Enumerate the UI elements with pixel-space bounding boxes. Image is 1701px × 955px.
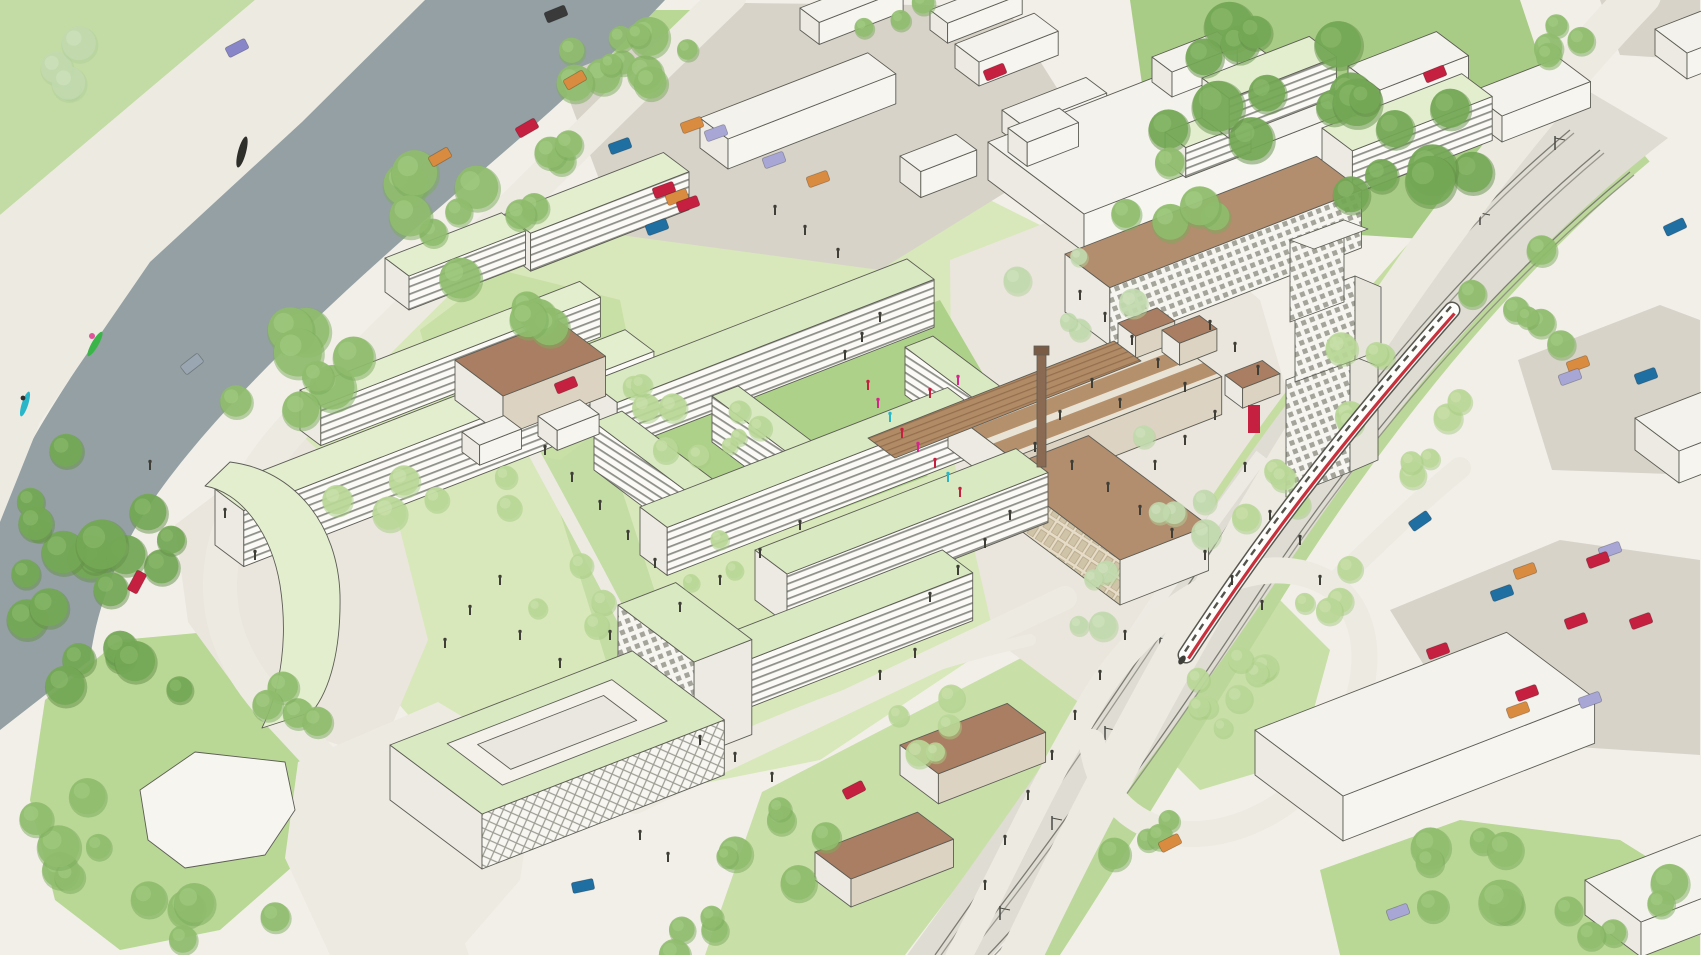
tree-highlight — [1199, 87, 1222, 110]
tree-highlight — [1558, 900, 1570, 912]
person-head — [958, 487, 961, 490]
person-head — [916, 442, 919, 445]
tree-highlight — [751, 419, 761, 429]
tree-highlight — [1236, 507, 1248, 519]
tree-highlight — [1551, 334, 1563, 346]
person-head — [770, 772, 773, 775]
tree-highlight — [149, 554, 164, 569]
red-banner — [1248, 405, 1260, 433]
person-head — [946, 472, 949, 475]
tree-highlight — [306, 365, 320, 379]
tree-highlight — [54, 438, 69, 453]
tree-highlight — [703, 908, 713, 918]
person-head — [1233, 342, 1236, 345]
tree-highlight — [1136, 428, 1146, 438]
person-head — [1138, 505, 1141, 508]
person-head — [1260, 600, 1263, 603]
tree-highlight — [427, 490, 438, 501]
tree-highlight — [98, 577, 113, 592]
tree-highlight — [728, 563, 736, 571]
tree-highlight — [1473, 831, 1485, 843]
tree-highlight — [1520, 309, 1529, 318]
person-head — [1078, 290, 1081, 293]
tree-highlight — [1190, 43, 1207, 60]
tree-highlight — [680, 42, 689, 51]
person-head — [1213, 410, 1216, 413]
tree-highlight — [1150, 827, 1161, 838]
tree-highlight — [393, 469, 407, 483]
person-head — [1123, 630, 1126, 633]
tree-highlight — [498, 468, 508, 478]
tree-highlight — [89, 837, 100, 848]
person-head — [928, 388, 931, 391]
tree-highlight — [638, 70, 653, 85]
tree-highlight — [1435, 94, 1453, 112]
person-head — [798, 520, 801, 523]
tree-highlight — [1274, 468, 1285, 479]
tree-highlight — [1007, 270, 1019, 282]
tree-highlight — [942, 688, 954, 700]
person-head — [1183, 382, 1186, 385]
tree-highlight — [662, 397, 674, 409]
person-head — [860, 332, 863, 335]
person-head — [1070, 460, 1073, 463]
tree-highlight — [120, 646, 138, 664]
person-head — [653, 558, 656, 561]
tree-highlight — [587, 616, 598, 627]
person-head — [638, 830, 641, 833]
tree-highlight — [1492, 836, 1508, 852]
person-head — [878, 670, 881, 673]
tree-highlight — [941, 717, 951, 727]
tree-highlight — [656, 440, 667, 451]
person-head — [758, 548, 761, 551]
tree-highlight — [1340, 559, 1351, 570]
tree-highlight — [1368, 345, 1378, 355]
person-head — [956, 565, 959, 568]
tree-highlight — [857, 20, 866, 29]
tree-highlight — [1530, 239, 1543, 252]
tree-highlight — [12, 604, 30, 622]
tree-highlight — [15, 563, 28, 576]
person-head — [1298, 535, 1301, 538]
person-head — [878, 312, 881, 315]
tree-highlight — [1462, 283, 1474, 295]
tree-highlight — [893, 12, 902, 21]
tree-highlight — [74, 783, 90, 799]
tree-highlight — [24, 806, 39, 821]
tree-highlight — [1196, 493, 1206, 503]
tree-highlight — [1319, 601, 1331, 613]
person-head — [518, 630, 521, 633]
person-head — [1230, 575, 1233, 578]
person-head — [913, 648, 916, 651]
tree-highlight — [1329, 336, 1343, 350]
tree-highlight — [1072, 250, 1080, 258]
person-head — [223, 508, 226, 511]
tree-highlight — [1548, 17, 1558, 27]
tree-highlight — [1190, 671, 1200, 681]
tree-highlight — [909, 743, 921, 755]
tree-highlight — [170, 680, 182, 692]
person-head — [626, 530, 629, 533]
tree-highlight — [34, 593, 51, 610]
tree-highlight — [1421, 894, 1435, 908]
tree-highlight — [1419, 851, 1431, 863]
person-head — [1170, 528, 1173, 531]
person-head — [570, 472, 573, 475]
person-head — [1090, 378, 1093, 381]
person-head — [928, 592, 931, 595]
person-head — [803, 225, 806, 228]
tree-highlight — [928, 745, 937, 754]
person-head — [773, 205, 776, 208]
tree-highlight — [1412, 162, 1434, 184]
tree-highlight — [509, 203, 522, 216]
person-head — [1318, 575, 1321, 578]
person-head — [443, 638, 446, 641]
tree-highlight — [539, 141, 553, 155]
person-head — [543, 445, 546, 448]
person-head — [1243, 462, 1246, 465]
tree-highlight — [256, 694, 269, 707]
tree-highlight — [594, 593, 605, 604]
tree-highlight — [50, 671, 68, 689]
person-head — [1098, 670, 1101, 673]
person-head — [1208, 320, 1211, 323]
person-head — [698, 735, 701, 738]
tree-highlight — [271, 675, 285, 689]
tree-highlight — [630, 26, 640, 36]
tree-highlight — [135, 886, 151, 902]
tree-highlight — [1154, 114, 1172, 132]
tree-highlight — [1457, 157, 1475, 175]
tree-highlight — [724, 440, 731, 447]
person-head — [1203, 550, 1206, 553]
tree-highlight — [733, 431, 740, 438]
person-head — [1003, 835, 1006, 838]
person-head — [1153, 460, 1156, 463]
person-head — [1183, 435, 1186, 438]
tree-highlight — [1656, 869, 1673, 886]
tree-highlight — [67, 647, 81, 661]
person-head — [733, 752, 736, 755]
tree-highlight — [1123, 292, 1135, 304]
tree-highlight — [1243, 20, 1258, 35]
tree-highlight — [1369, 163, 1384, 178]
person-head — [983, 538, 986, 541]
tree-highlight — [1092, 615, 1105, 628]
tree-highlight — [1451, 392, 1462, 403]
person-head — [1106, 482, 1109, 485]
tree-highlight — [1297, 595, 1306, 604]
tree-highlight — [1416, 832, 1433, 849]
person-head — [888, 412, 891, 415]
tree-highlight — [1161, 813, 1170, 822]
tree-highlight — [66, 30, 81, 45]
tree-highlight — [1484, 885, 1503, 904]
tree-highlight — [449, 202, 461, 214]
tree-highlight — [1191, 699, 1201, 709]
tree-highlight — [1102, 842, 1116, 856]
person-head — [1008, 510, 1011, 513]
tree-highlight — [719, 848, 728, 857]
tree-highlight — [23, 510, 38, 525]
tree-highlight — [1571, 30, 1583, 42]
tree-highlight — [280, 335, 302, 357]
tree-highlight — [1072, 618, 1080, 626]
tree-highlight — [891, 708, 900, 717]
tree-highlight — [514, 305, 531, 322]
masterplan-illustration — [0, 0, 1701, 955]
tree-highlight — [47, 536, 66, 555]
person-head — [1073, 710, 1076, 713]
tree-highlight — [326, 489, 339, 502]
tree-highlight — [1403, 454, 1413, 464]
tree-highlight — [672, 920, 684, 932]
person-head — [678, 602, 681, 605]
person-head — [1103, 312, 1106, 315]
tree-highlight — [771, 800, 781, 810]
person-head — [1130, 335, 1133, 338]
tree-highlight — [1231, 650, 1242, 661]
tree-highlight — [1216, 720, 1224, 728]
tree-highlight — [20, 491, 32, 503]
person-head — [983, 880, 986, 883]
tree-highlight — [1211, 8, 1233, 30]
tree-highlight — [1423, 451, 1432, 460]
tree-highlight — [815, 826, 828, 839]
tree-highlight — [1506, 300, 1517, 311]
tree-highlight — [338, 342, 356, 360]
tree-highlight — [45, 56, 59, 70]
person-head — [1026, 790, 1029, 793]
tree-highlight — [1651, 893, 1663, 905]
tree-highlight — [161, 529, 174, 542]
tree-highlight — [134, 498, 150, 514]
person-head — [666, 852, 669, 855]
tree-highlight — [612, 29, 623, 40]
tree-highlight — [264, 906, 277, 919]
tree-highlight — [287, 396, 304, 413]
tree-highlight — [636, 397, 648, 409]
tree-highlight — [1185, 191, 1203, 209]
tree-highlight — [83, 526, 105, 548]
tree-highlight — [500, 498, 511, 509]
tree-highlight — [685, 576, 692, 583]
tree-highlight — [603, 56, 613, 66]
tree-highlight — [1353, 87, 1367, 101]
tree-highlight — [1437, 407, 1450, 420]
tree-highlight — [530, 601, 538, 609]
person-head — [608, 630, 611, 633]
person-head — [148, 460, 151, 463]
tree-highlight — [377, 500, 392, 515]
person-head — [718, 575, 721, 578]
tree-highlight — [179, 888, 197, 906]
person-head — [1118, 398, 1121, 401]
person-head — [558, 658, 561, 661]
tree-highlight — [573, 556, 583, 566]
person-head — [876, 398, 879, 401]
person-head — [843, 350, 846, 353]
tree-highlight — [691, 447, 701, 457]
tree-highlight — [395, 200, 414, 219]
tree-highlight — [713, 532, 721, 540]
tree-highlight — [56, 70, 71, 85]
tree-highlight — [731, 403, 741, 413]
tree-highlight — [460, 171, 479, 190]
tree-highlight — [1115, 203, 1128, 216]
person-head — [900, 428, 903, 431]
person-head — [468, 605, 471, 608]
tree-highlight — [1381, 115, 1398, 132]
tree-highlight — [562, 41, 573, 52]
tree-highlight — [1195, 523, 1208, 536]
aerial-masterplan-drawing — [0, 0, 1701, 955]
person-head — [866, 380, 869, 383]
person-head — [1268, 510, 1271, 513]
person-head — [253, 550, 256, 553]
tree-highlight — [1338, 181, 1354, 197]
person-head — [1058, 410, 1061, 413]
tree-highlight — [1253, 79, 1270, 96]
person-head — [598, 500, 601, 503]
tree-highlight — [224, 389, 238, 403]
person-head — [498, 575, 501, 578]
tree-highlight — [1159, 151, 1172, 164]
tree-highlight — [1539, 46, 1550, 57]
tree-highlight — [1229, 688, 1241, 700]
person-head — [956, 375, 959, 378]
person-head — [1256, 365, 1259, 368]
tree-highlight — [1581, 925, 1593, 937]
tree-highlight — [785, 869, 801, 885]
person-head — [1050, 750, 1053, 753]
person-head — [836, 248, 839, 251]
person-head — [1033, 442, 1036, 445]
tree-highlight — [398, 156, 418, 176]
tree-highlight — [558, 134, 570, 146]
person-head — [1156, 358, 1159, 361]
tree-highlight — [445, 263, 463, 281]
tree-highlight — [1062, 315, 1070, 323]
tree-highlight — [1086, 572, 1094, 580]
tree-highlight — [1151, 505, 1160, 514]
tree-highlight — [634, 377, 643, 386]
tree-highlight — [1321, 27, 1342, 48]
tree-highlight — [1157, 208, 1173, 224]
person-head — [933, 458, 936, 461]
tree-highlight — [173, 929, 185, 941]
tree-highlight — [306, 710, 319, 723]
